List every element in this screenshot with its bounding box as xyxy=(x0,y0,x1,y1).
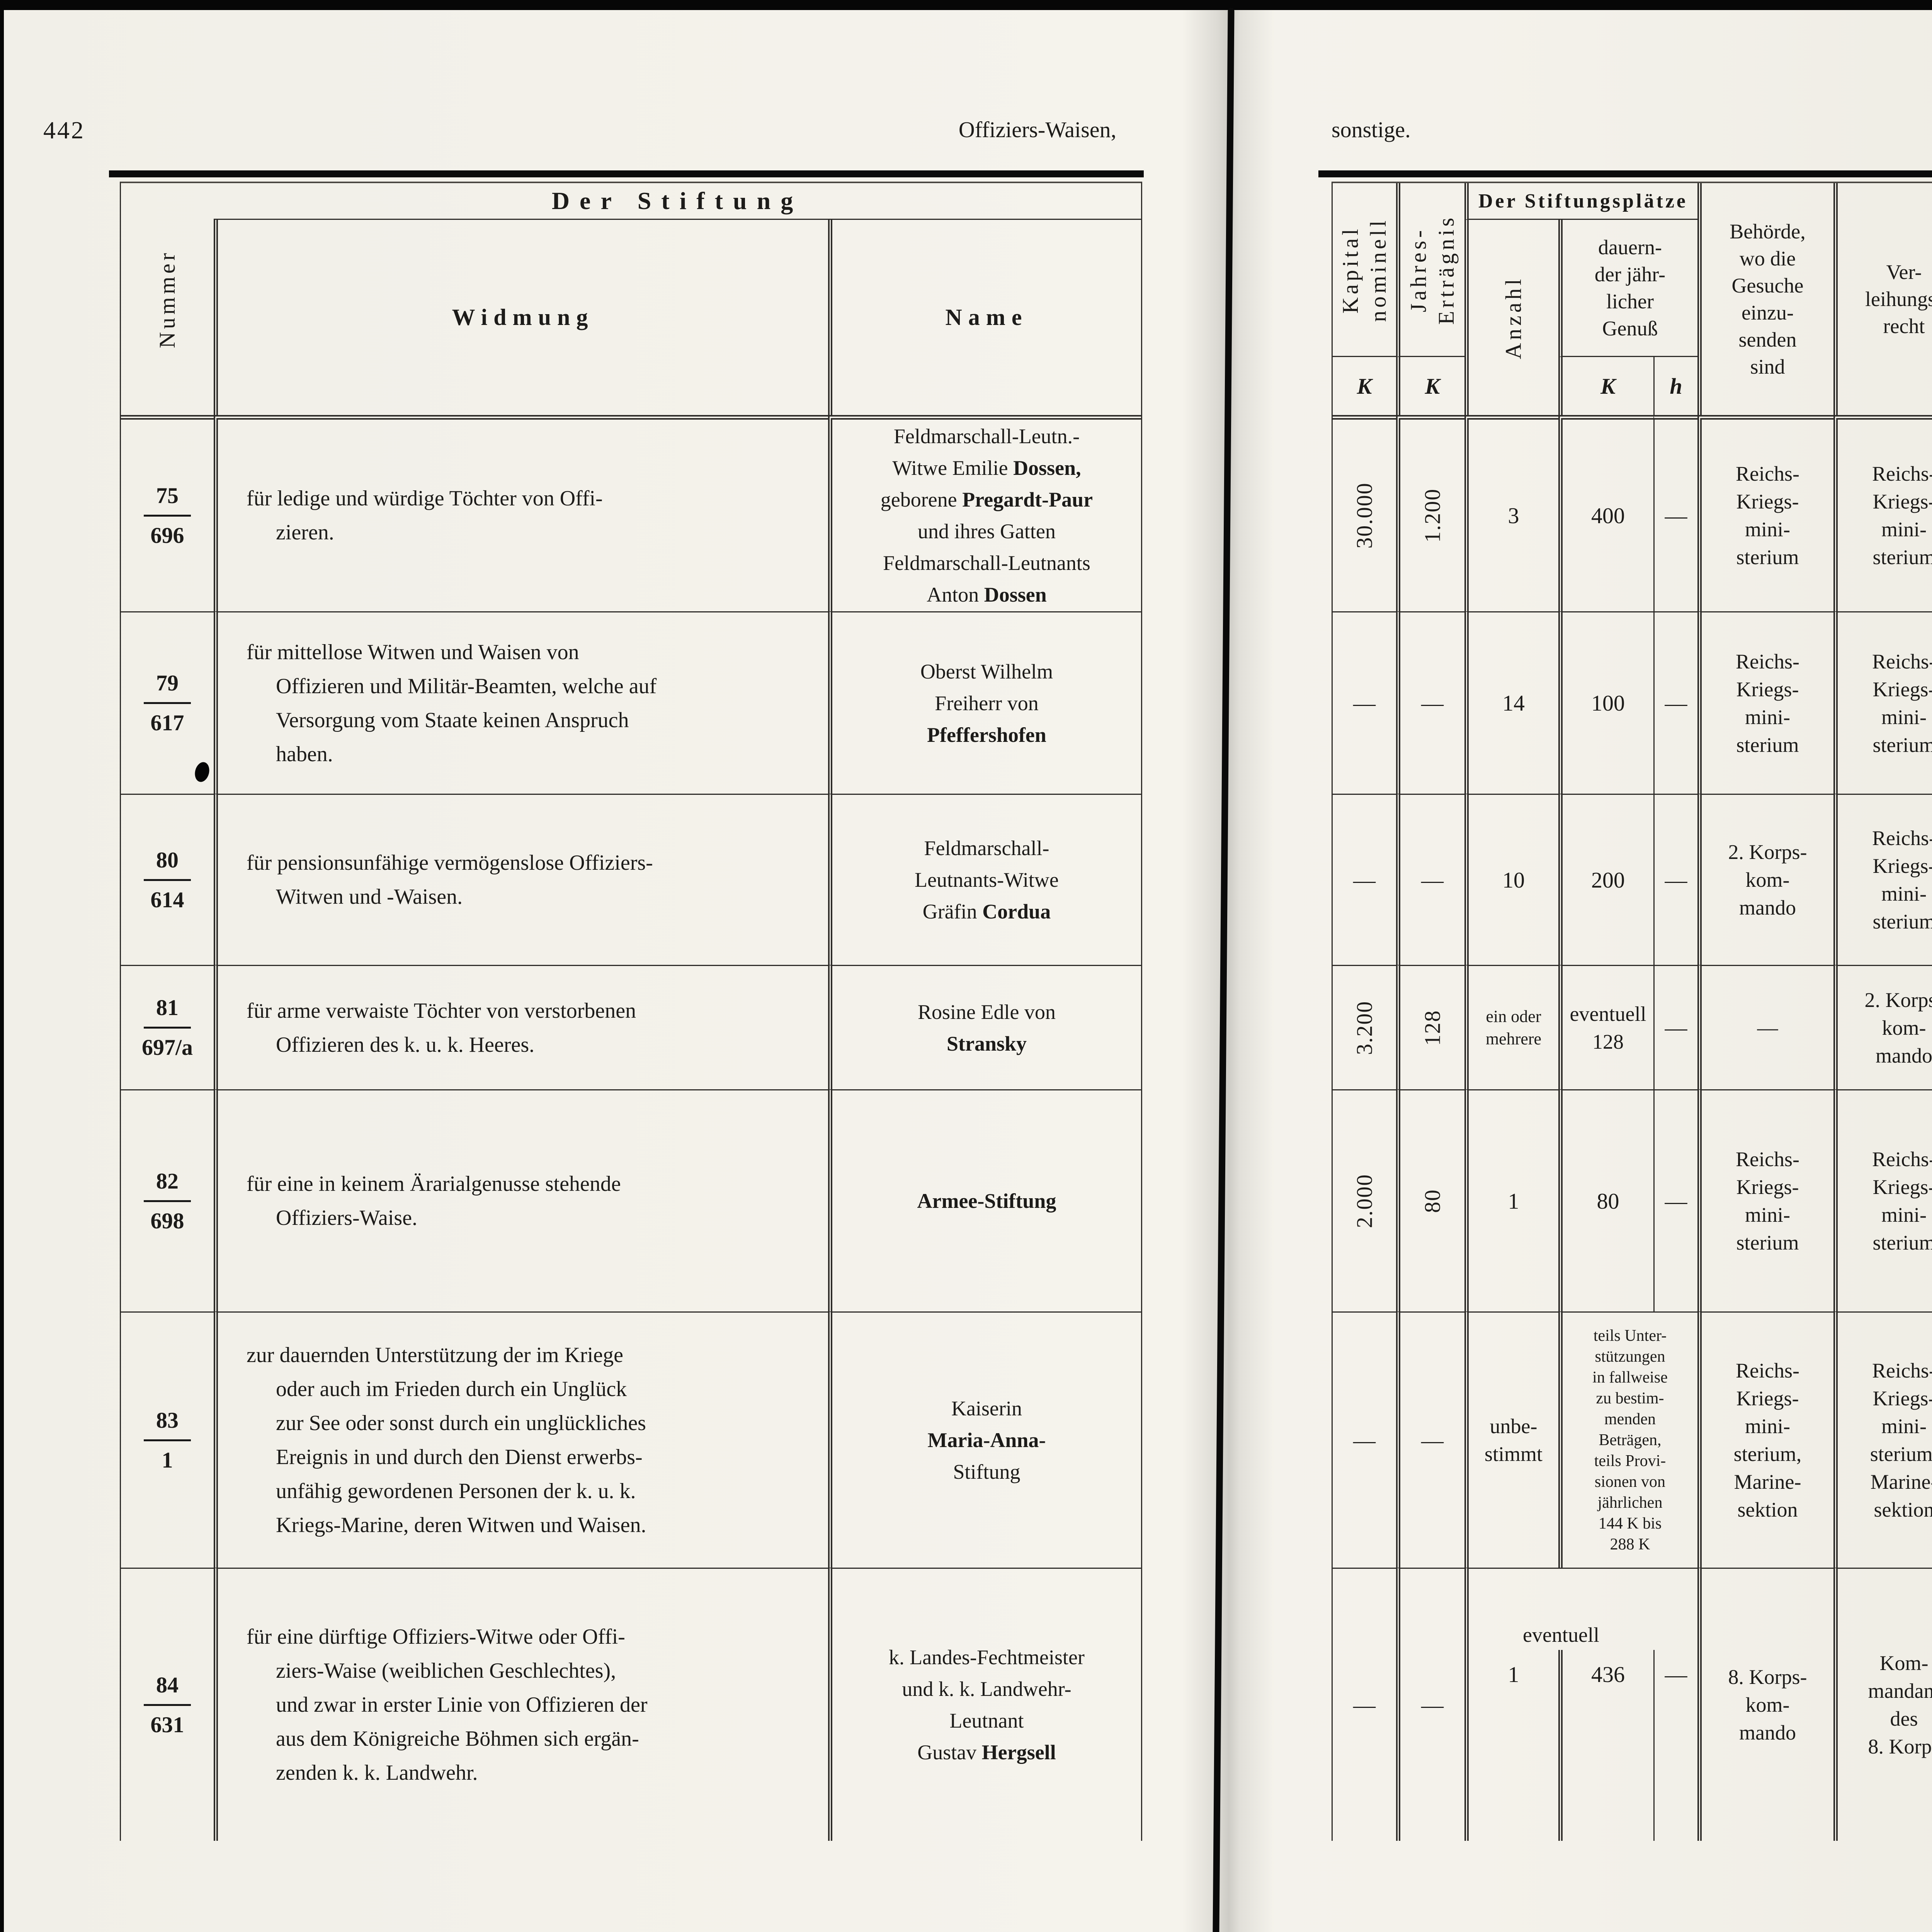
jahres-cell: — xyxy=(1396,611,1464,794)
kapital-cell: 3.200 xyxy=(1333,965,1396,1089)
scanned-book-spread: { "left": { "page_number": "442", "runni… xyxy=(0,0,1932,1932)
verleihungsrecht-cell: Reichs- Kriegs- mini- sterium xyxy=(1833,415,1932,611)
table-top-rule-right xyxy=(1318,170,1932,177)
running-title-right: sonstige. xyxy=(1332,117,1411,143)
jahres-cell: — xyxy=(1396,794,1464,965)
genuss-h-cell: — xyxy=(1653,611,1697,794)
genuss-k-cell: 200 xyxy=(1558,794,1653,965)
widmung-cell: für ledige und würdige Töchter von Offi-… xyxy=(214,415,828,611)
column-header-verleihungsrecht: Ver- leihungs- recht xyxy=(1833,183,1932,415)
scan-border-top xyxy=(0,0,1932,10)
eventuell-label: eventuell xyxy=(1469,1569,1653,1650)
widmung-cell: für pensionsunfähige vermögenslose Offiz… xyxy=(214,794,828,965)
genuss-h-cell: — xyxy=(1653,965,1697,1089)
unit-genuss-h: h xyxy=(1653,357,1697,415)
widmung-cell: für arme verwaiste Töchter von verstorbe… xyxy=(214,965,828,1089)
name-cell: Feldmarschall- Leutnants-Witwe Gräfin Co… xyxy=(828,794,1141,965)
widmung-cell: für eine dürftige Offiziers-Witwe oder O… xyxy=(214,1568,828,1841)
anzahl-cell: unbe- stimmt xyxy=(1464,1311,1558,1568)
column-header-kapital: Kapital nominell xyxy=(1333,183,1396,357)
nummer-cell: 831 xyxy=(121,1311,214,1568)
nummer-cell: 84631 xyxy=(121,1568,214,1841)
column-header-nummer: Nummer xyxy=(121,183,214,415)
behoerde-cell: 2. Korps- kom- mando xyxy=(1697,794,1833,965)
genuss-k-cell: 100 xyxy=(1558,611,1653,794)
anzahl-cell: 14 xyxy=(1464,611,1558,794)
genuss-k-cell: 80 xyxy=(1558,1089,1653,1311)
verleihungsrecht-cell: Reichs- Kriegs- mini- sterium xyxy=(1833,1089,1932,1311)
jahres-cell: 80 xyxy=(1396,1089,1464,1311)
genuss-k-cell: 400 xyxy=(1558,415,1653,611)
genuss-h-cell: — xyxy=(1653,415,1697,611)
kapital-cell: 30.000 xyxy=(1333,415,1396,611)
nummer-cell: 82698 xyxy=(121,1089,214,1311)
verleihungsrecht-cell: Reichs- Kriegs- mini- sterium xyxy=(1833,611,1932,794)
behoerde-cell: Reichs- Kriegs- mini- sterium xyxy=(1697,415,1833,611)
table-title: Der Stiftung xyxy=(214,183,1141,220)
behoerde-cell: 8. Korps- kom- mando xyxy=(1697,1568,1833,1841)
name-cell: Armee-Stiftung xyxy=(828,1089,1141,1311)
behoerde-cell: Reichs- Kriegs- mini- sterium xyxy=(1697,1089,1833,1311)
genuss-k-cell: 436 xyxy=(1558,1650,1653,1841)
anzahl-cell: 10 xyxy=(1464,794,1558,965)
nummer-cell: 75696 xyxy=(121,415,214,611)
jahres-cell: 1.200 xyxy=(1396,415,1464,611)
column-header-genuss: dauern- der jähr- licher Genuß xyxy=(1558,220,1697,357)
verleihungsrecht-cell: Reichs- Kriegs- mini- sterium xyxy=(1833,794,1932,965)
verleihungsrecht-cell: Reichs- Kriegs- mini- sterium, Marine- s… xyxy=(1833,1311,1932,1568)
column-header-name: Name xyxy=(828,220,1141,415)
jahres-cell: — xyxy=(1396,1568,1464,1841)
anzahl-cell: 1 xyxy=(1469,1650,1558,1841)
unit-jahres-K: K xyxy=(1396,357,1464,415)
column-header-behoerde: Behörde, wo die Gesuche einzu- senden si… xyxy=(1697,183,1833,415)
jahres-cell: 128 xyxy=(1396,965,1464,1089)
widmung-cell: für mittellose Witwen und Waisen von Off… xyxy=(214,611,828,794)
behoerde-cell: Reichs- Kriegs- mini- sterium, Marine- s… xyxy=(1697,1311,1833,1568)
nummer-cell: 79617 xyxy=(121,611,214,794)
genuss-h-cell: — xyxy=(1653,1650,1697,1841)
unit-genuss-K: K xyxy=(1558,357,1653,415)
kapital-cell: — xyxy=(1333,611,1396,794)
unit-kapital-K: K xyxy=(1333,357,1396,415)
jahres-cell: — xyxy=(1396,1311,1464,1568)
name-cell: Feldmarschall-Leutn.- Witwe Emilie Dosse… xyxy=(828,415,1141,611)
widmung-cell: zur dauernden Unterstützung der im Krieg… xyxy=(214,1311,828,1568)
name-cell: k. Landes-Fechtmeister und k. k. Landweh… xyxy=(828,1568,1141,1841)
running-title-left: Offiziers-Waisen, xyxy=(900,117,1175,143)
scan-border-left xyxy=(0,0,4,1932)
column-header-anzahl: Anzahl xyxy=(1464,220,1558,415)
kapital-cell: — xyxy=(1333,794,1396,965)
eventuell-merged-cell: eventuell — 1 436 xyxy=(1464,1568,1697,1841)
name-cell: Oberst Wilhelm Freiherr von Pfeffershofe… xyxy=(828,611,1141,794)
genuss-h-cell: — xyxy=(1653,1089,1697,1311)
widmung-cell: für eine in keinem Ärarialgenusse stehen… xyxy=(214,1089,828,1311)
kapital-cell: 2.000 xyxy=(1333,1089,1396,1311)
behoerde-cell: Reichs- Kriegs- mini- sterium xyxy=(1697,611,1833,794)
table-left-page: Der Stiftung Nummer Widmung Name 75696 f… xyxy=(120,182,1142,1841)
genuss-k-cell: eventuell 128 xyxy=(1558,965,1653,1089)
anzahl-cell: ein oder mehrere xyxy=(1464,965,1558,1089)
name-cell: Rosine Edle von Stransky xyxy=(828,965,1141,1089)
kapital-cell: — xyxy=(1333,1311,1396,1568)
genuss-h-cell: — xyxy=(1653,794,1697,965)
anzahl-cell: 3 xyxy=(1464,415,1558,611)
verleihungsrecht-cell: 2. Korps- kom- mando xyxy=(1833,965,1932,1089)
verleihungsrecht-cell: Kom- mandant des 8. Korps xyxy=(1833,1568,1932,1841)
name-cell: Kaiserin Maria-Anna- Stiftung xyxy=(828,1311,1141,1568)
behoerde-cell: — xyxy=(1697,965,1833,1089)
table-top-rule-left xyxy=(109,170,1144,177)
genuss-merged-cell: teils Unter- stützungen in fallweise zu … xyxy=(1558,1311,1697,1568)
column-header-widmung: Widmung xyxy=(214,220,828,415)
nummer-cell: 80614 xyxy=(121,794,214,965)
kapital-cell: — xyxy=(1333,1568,1396,1841)
table-right-page: Kapital nominell Jahres- Erträgnis Der S… xyxy=(1332,182,1932,1841)
column-group-stiftungsplaetze: Der Stiftungsplätze xyxy=(1464,183,1697,220)
page-number-left: 442 xyxy=(43,116,85,145)
column-header-jahres-ertraegnis: Jahres- Erträgnis xyxy=(1396,183,1464,357)
nummer-cell: 81697/a xyxy=(121,965,214,1089)
anzahl-cell: 1 xyxy=(1464,1089,1558,1311)
